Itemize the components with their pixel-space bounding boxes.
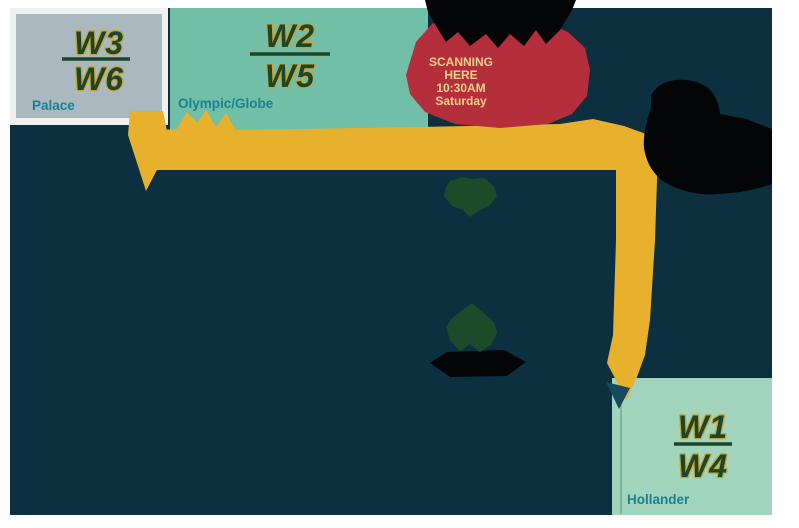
hollander-street-line (620, 404, 622, 514)
scanning-notice-line-2: HERE (444, 68, 477, 82)
wave-assembly-map: W3 W6 Palace W2 W5 Olympic/Globe W1 W4 H… (0, 0, 799, 528)
scanning-notice-line-1: SCANNING (429, 55, 493, 69)
palace-wave-bottom-label: W6 (74, 61, 124, 97)
scanning-notice-line-4: Saturday (435, 94, 487, 108)
olympic-wave-top-label: W2 (265, 18, 315, 54)
palace-name-label: Palace (32, 98, 75, 113)
olympic-name-label: Olympic/Globe (178, 96, 274, 111)
olympic-wave-bottom-label: W5 (265, 58, 315, 94)
hollander-wave-top-label: W1 (678, 409, 728, 445)
map-canvas: W3 W6 Palace W2 W5 Olympic/Globe W1 W4 H… (0, 0, 799, 528)
hollander-wave-bottom-label: W4 (678, 448, 728, 484)
palace-wave-top-label: W3 (74, 25, 124, 61)
hollander-name-label: Hollander (627, 492, 690, 507)
scanning-notice-line-3: 10:30AM (436, 81, 485, 95)
